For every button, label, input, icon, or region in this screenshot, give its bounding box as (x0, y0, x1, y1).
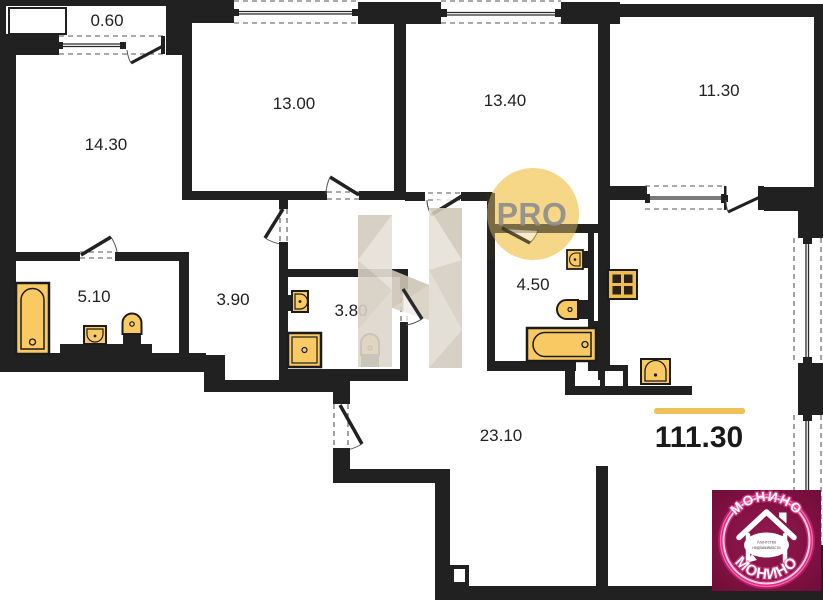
svg-text:111.30: 111.30 (655, 421, 743, 454)
svg-text:3.90: 3.90 (216, 290, 249, 309)
svg-text:23.10: 23.10 (480, 426, 523, 445)
svg-text:0.60: 0.60 (90, 11, 123, 30)
svg-text:14.30: 14.30 (85, 135, 128, 154)
svg-text:5.10: 5.10 (77, 287, 110, 306)
svg-text:PRO: PRO (497, 197, 568, 233)
svg-text:13.00: 13.00 (273, 94, 316, 113)
svg-text:недвижимости: недвижимости (752, 545, 781, 550)
svg-text:11.30: 11.30 (698, 81, 739, 100)
svg-text:4.50: 4.50 (516, 275, 549, 294)
svg-text:Агентство: Агентство (757, 540, 777, 545)
svg-text:13.40: 13.40 (484, 91, 527, 110)
